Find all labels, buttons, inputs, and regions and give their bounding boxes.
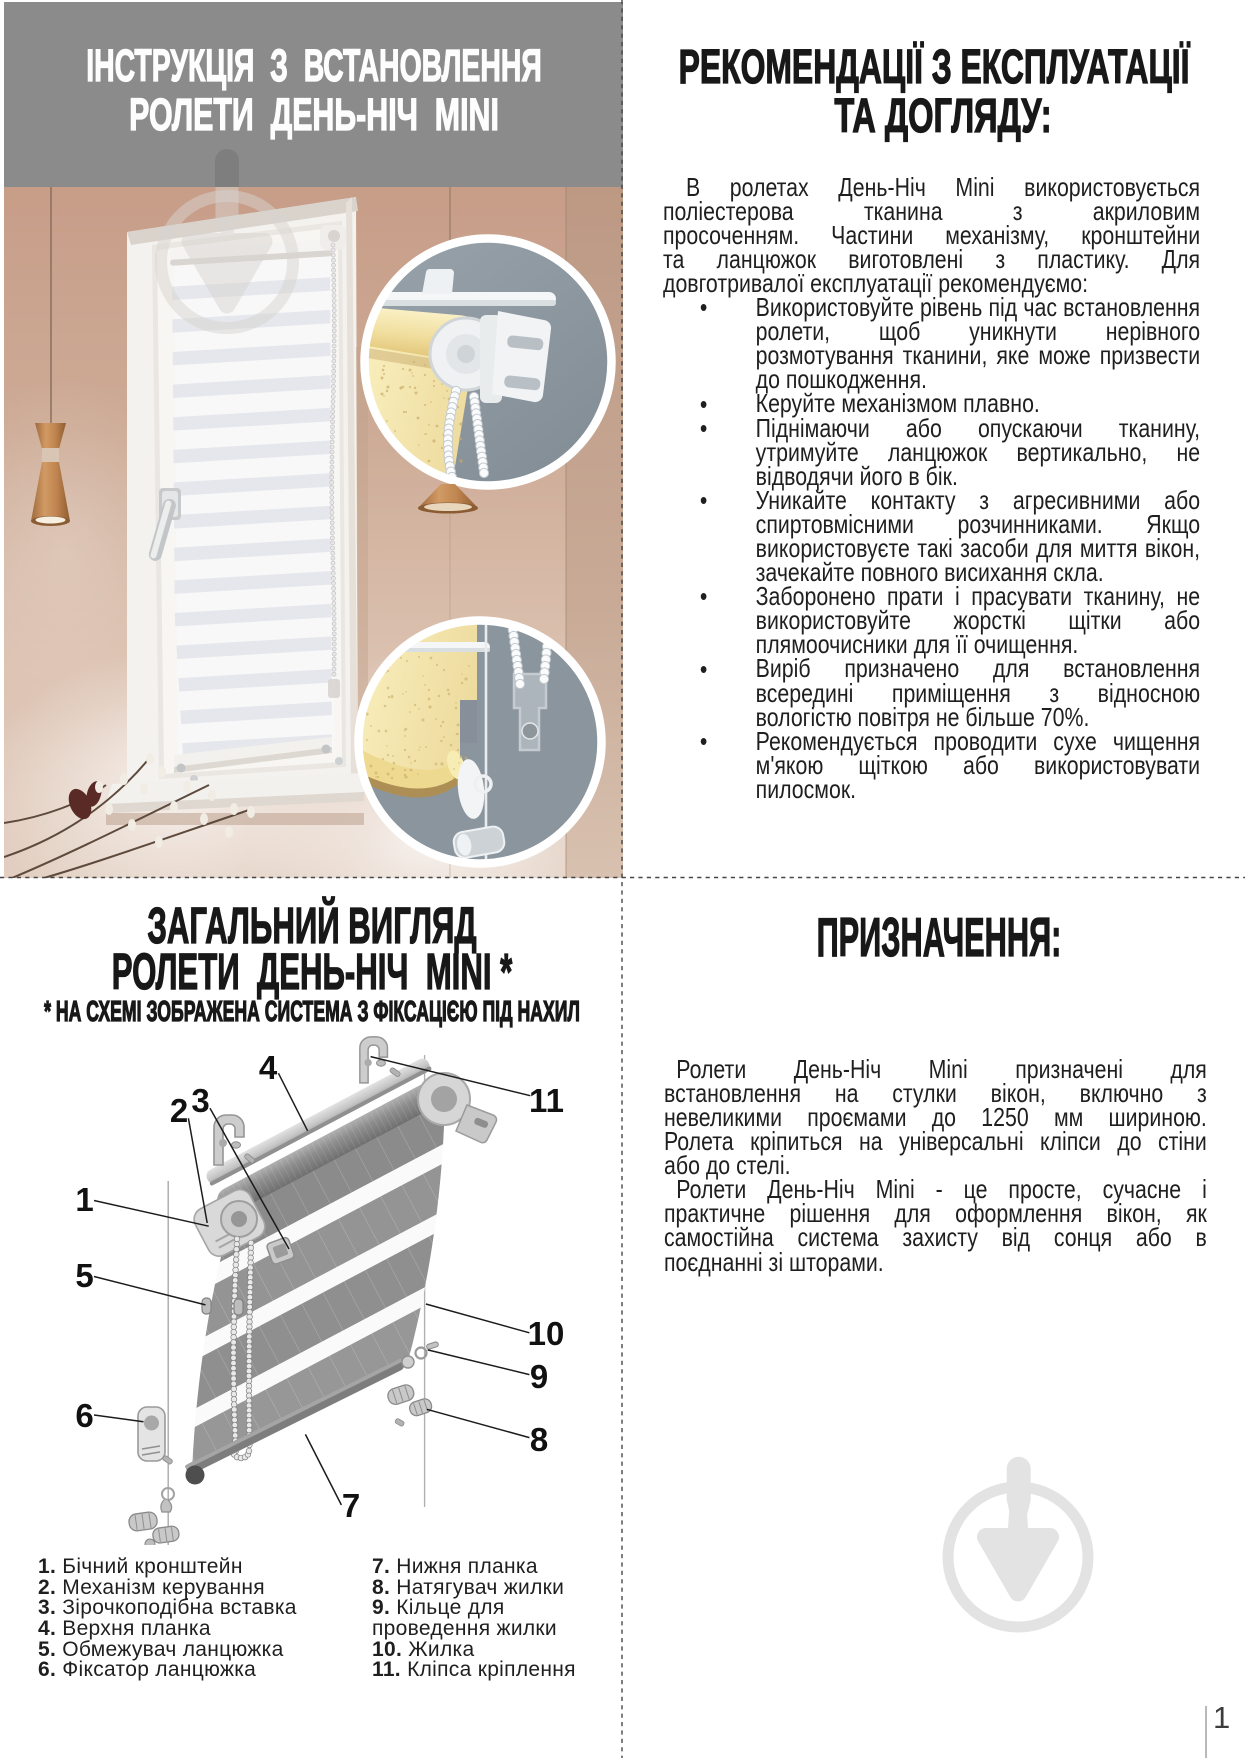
svg-text:7: 7 [342,1487,360,1524]
svg-text:3: 3 [191,1082,209,1119]
svg-text:1: 1 [75,1181,93,1218]
svg-text:11: 11 [529,1082,564,1119]
svg-text:2: 2 [170,1092,188,1129]
svg-text:4: 4 [259,1049,278,1086]
svg-text:10: 10 [528,1315,565,1352]
svg-text:5: 5 [75,1257,93,1294]
svg-text:6: 6 [75,1397,93,1434]
svg-text:9: 9 [530,1358,548,1395]
svg-text:8: 8 [530,1421,548,1458]
